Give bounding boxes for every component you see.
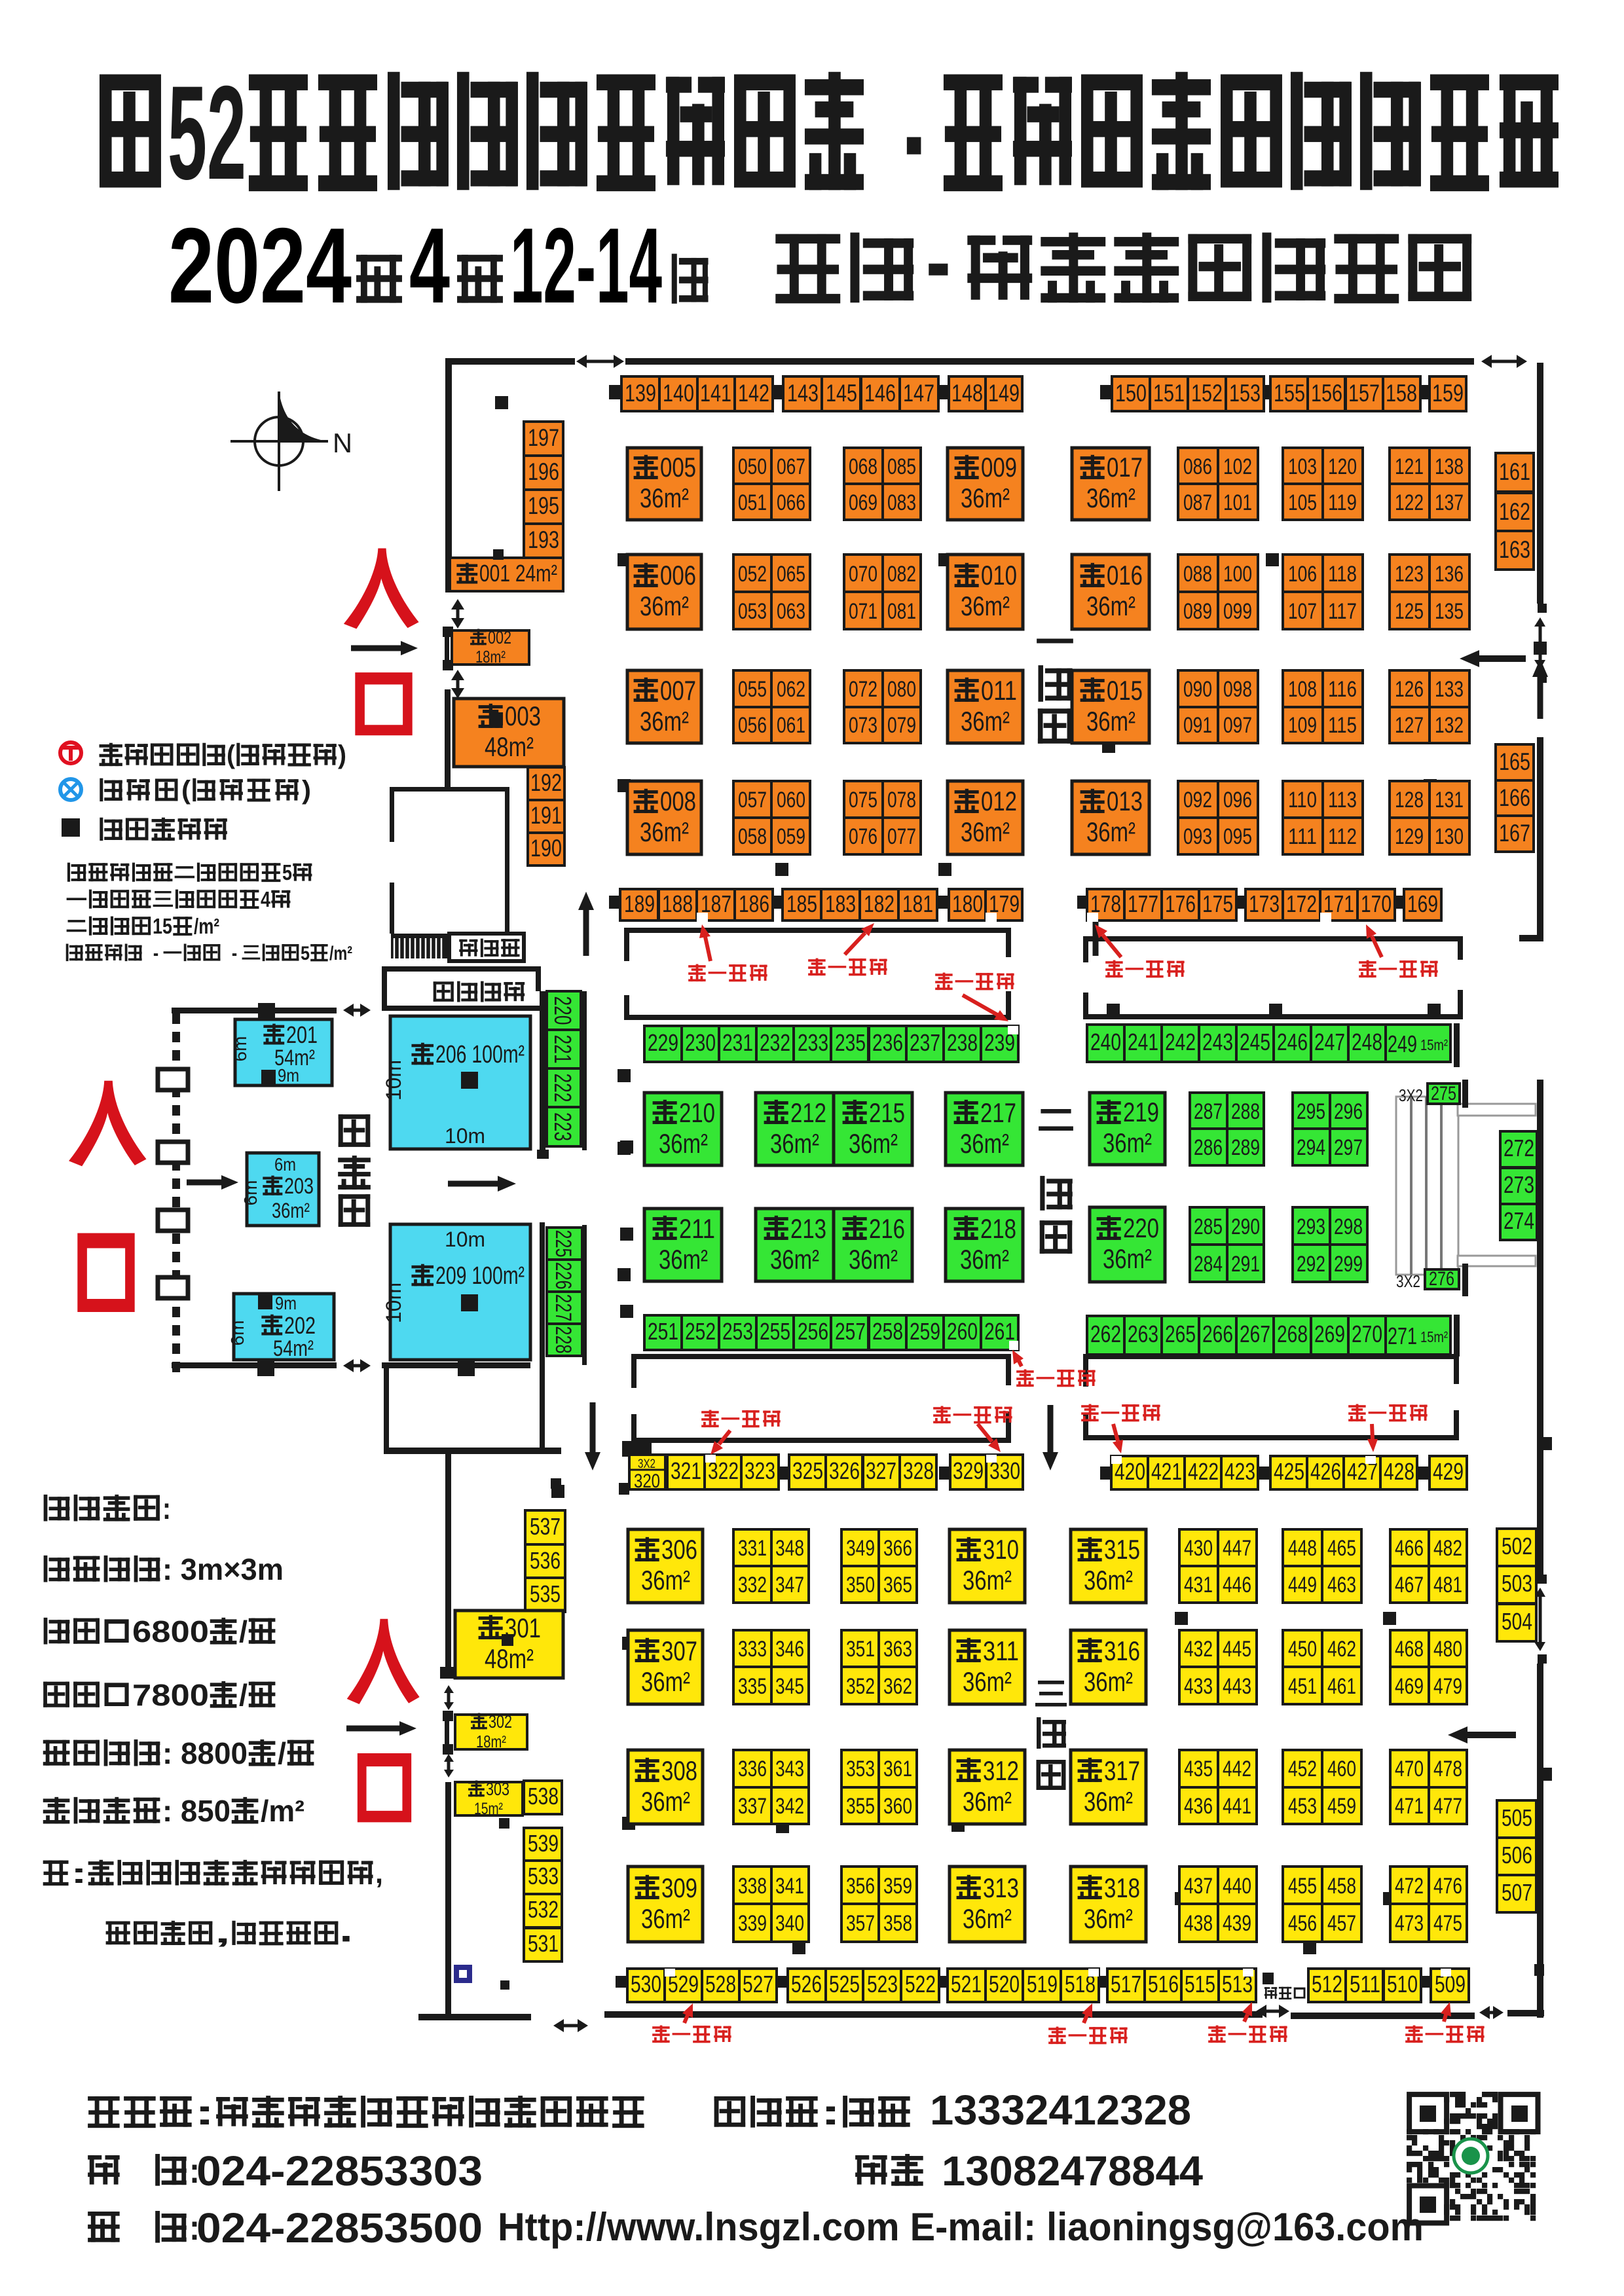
- svg-text:311: 311: [983, 1635, 1019, 1666]
- svg-text:219: 219: [1123, 1097, 1159, 1127]
- svg-text:309: 309: [661, 1872, 697, 1903]
- svg-text:010: 010: [981, 560, 1017, 591]
- svg-text:458: 458: [1327, 1874, 1356, 1899]
- svg-text:220: 220: [549, 996, 576, 1025]
- svg-text:166: 166: [1499, 784, 1530, 811]
- svg-text:267: 267: [1240, 1321, 1270, 1347]
- svg-text:005: 005: [660, 452, 696, 483]
- svg-text:441: 441: [1223, 1794, 1251, 1819]
- svg-text:285: 285: [1194, 1214, 1223, 1239]
- svg-text:182: 182: [864, 890, 895, 917]
- svg-text:358: 358: [883, 1911, 912, 1936]
- svg-text:276: 276: [1429, 1268, 1454, 1290]
- svg-text:291: 291: [1231, 1252, 1260, 1277]
- svg-text:527: 527: [743, 1971, 773, 1997]
- svg-text:131: 131: [1435, 788, 1464, 812]
- svg-text:517: 517: [1111, 1971, 1141, 1997]
- svg-text:081: 081: [887, 599, 916, 624]
- svg-text:521: 521: [951, 1971, 982, 1997]
- svg-text:246: 246: [1277, 1029, 1308, 1055]
- svg-text:051: 051: [738, 490, 767, 515]
- svg-text:516: 516: [1148, 1971, 1179, 1997]
- svg-text:533: 533: [528, 1863, 559, 1889]
- svg-text:173: 173: [1249, 890, 1280, 917]
- svg-text:350: 350: [846, 1573, 875, 1597]
- svg-text:308: 308: [661, 1755, 697, 1786]
- svg-text:127: 127: [1395, 713, 1424, 738]
- svg-text:255: 255: [760, 1318, 790, 1345]
- svg-text:505: 505: [1502, 1804, 1532, 1831]
- svg-text:083: 083: [887, 490, 916, 515]
- svg-text:159: 159: [1432, 380, 1464, 407]
- svg-text:136: 136: [1435, 562, 1464, 587]
- svg-text:101: 101: [1223, 490, 1252, 515]
- svg-text:: 8800: : 8800: [162, 1736, 248, 1770]
- svg-text:289: 289: [1231, 1135, 1260, 1160]
- svg-text:442: 442: [1223, 1757, 1251, 1781]
- svg-text:522: 522: [905, 1971, 936, 1997]
- svg-text:092: 092: [1183, 788, 1212, 812]
- svg-text:539: 539: [528, 1830, 559, 1857]
- svg-text:247: 247: [1314, 1029, 1345, 1055]
- svg-text:225: 225: [551, 1230, 576, 1258]
- svg-text:102: 102: [1223, 454, 1252, 479]
- svg-text:259: 259: [910, 1318, 940, 1345]
- svg-text:153: 153: [1229, 380, 1261, 407]
- svg-text:013: 013: [1107, 786, 1143, 816]
- svg-text:130: 130: [1435, 824, 1464, 849]
- svg-text:095: 095: [1223, 824, 1252, 849]
- svg-text:313: 313: [983, 1872, 1019, 1903]
- svg-text:228: 228: [551, 1326, 576, 1354]
- svg-text:36m²: 36m²: [640, 591, 689, 621]
- svg-text:113: 113: [1328, 788, 1357, 812]
- svg-text:012: 012: [981, 786, 1017, 816]
- svg-text:141: 141: [700, 380, 731, 407]
- svg-text:348: 348: [775, 1536, 804, 1561]
- svg-text:115: 115: [1328, 713, 1357, 738]
- svg-text:461: 461: [1327, 1674, 1356, 1699]
- svg-text:10m: 10m: [382, 1283, 405, 1323]
- svg-text:302: 302: [489, 1711, 512, 1732]
- svg-text:132: 132: [1435, 713, 1464, 738]
- svg-text:450: 450: [1288, 1637, 1317, 1662]
- svg-text:451: 451: [1288, 1674, 1317, 1699]
- svg-text:362: 362: [883, 1674, 912, 1699]
- svg-text:151: 151: [1153, 380, 1185, 407]
- svg-text:36m²: 36m²: [849, 1244, 898, 1275]
- svg-text:080: 080: [887, 677, 916, 702]
- svg-text:072: 072: [849, 677, 877, 702]
- svg-text:2024: 2024: [168, 206, 352, 325]
- svg-text:053: 053: [738, 599, 767, 624]
- svg-text:078: 078: [887, 788, 916, 812]
- svg-text:36m²: 36m²: [963, 1666, 1012, 1697]
- svg-text::: :: [194, 2092, 215, 2132]
- svg-text:233: 233: [798, 1029, 828, 1056]
- svg-text:077: 077: [887, 824, 916, 849]
- svg-text:36m²: 36m²: [960, 1244, 1009, 1275]
- svg-text:125: 125: [1395, 599, 1424, 624]
- svg-text:460: 460: [1327, 1757, 1356, 1781]
- svg-text:057: 057: [738, 788, 767, 812]
- svg-text:284: 284: [1194, 1252, 1223, 1277]
- svg-text:070: 070: [849, 562, 877, 587]
- svg-text:024-22853500: 024-22853500: [196, 2204, 483, 2251]
- svg-text:480: 480: [1433, 1637, 1462, 1662]
- svg-text:528: 528: [705, 1971, 736, 1997]
- svg-text:001 24m²: 001 24m²: [479, 560, 557, 587]
- svg-text:445: 445: [1223, 1637, 1251, 1662]
- svg-text:215: 215: [869, 1097, 905, 1128]
- svg-text:216: 216: [869, 1213, 905, 1244]
- svg-text:143: 143: [787, 380, 819, 407]
- svg-text:312: 312: [983, 1755, 1019, 1786]
- svg-text:203: 203: [284, 1174, 314, 1199]
- svg-text:286: 286: [1194, 1135, 1223, 1160]
- svg-text::: :: [162, 1491, 171, 1525]
- svg-text:36m²: 36m²: [1086, 591, 1135, 621]
- svg-text:287: 287: [1194, 1099, 1223, 1124]
- svg-text:068: 068: [849, 454, 877, 479]
- svg-text:091: 091: [1183, 713, 1212, 738]
- svg-text:36m²: 36m²: [849, 1128, 898, 1159]
- svg-text:36m²: 36m²: [961, 591, 1010, 621]
- svg-text:/: /: [278, 1736, 286, 1770]
- svg-text:36m²: 36m²: [1084, 1786, 1133, 1817]
- svg-text:162: 162: [1499, 498, 1530, 525]
- svg-text:,: ,: [375, 1857, 383, 1889]
- svg-text:36m²: 36m²: [641, 1565, 690, 1595]
- svg-text:069: 069: [849, 490, 877, 515]
- svg-text:183: 183: [825, 890, 856, 917]
- svg-text:525: 525: [829, 1971, 860, 1997]
- svg-text:357: 357: [846, 1911, 875, 1936]
- svg-text:327: 327: [866, 1457, 896, 1484]
- svg-text:299: 299: [1334, 1252, 1363, 1277]
- svg-text:36m²: 36m²: [1084, 1565, 1133, 1595]
- svg-text:109: 109: [1288, 713, 1317, 738]
- svg-text:270: 270: [1352, 1321, 1382, 1347]
- svg-text:243: 243: [1202, 1029, 1233, 1055]
- svg-text:251: 251: [648, 1318, 678, 1345]
- svg-text:197: 197: [528, 424, 559, 451]
- svg-text:36m²: 36m²: [961, 816, 1010, 847]
- svg-text:150: 150: [1115, 380, 1147, 407]
- svg-text:329: 329: [953, 1457, 984, 1484]
- svg-text:: 850: : 850: [162, 1794, 231, 1828]
- svg-text:341: 341: [775, 1874, 804, 1899]
- svg-text:290: 290: [1231, 1214, 1260, 1239]
- svg-text:193: 193: [528, 526, 559, 553]
- svg-text:36m²: 36m²: [770, 1244, 819, 1275]
- svg-text:210: 210: [679, 1097, 715, 1128]
- svg-text:238: 238: [947, 1029, 978, 1056]
- svg-text:223: 223: [549, 1112, 576, 1141]
- svg-text:6m: 6m: [274, 1154, 296, 1175]
- svg-text:107: 107: [1288, 599, 1317, 624]
- svg-text:137: 137: [1435, 490, 1464, 515]
- svg-text:52: 52: [168, 59, 246, 208]
- svg-text:158: 158: [1386, 380, 1417, 407]
- svg-text:318: 318: [1104, 1872, 1140, 1903]
- svg-text:430: 430: [1184, 1536, 1213, 1561]
- svg-text:161: 161: [1499, 458, 1530, 485]
- svg-text:/m²: /m²: [261, 1794, 304, 1828]
- svg-text:261: 261: [984, 1318, 1015, 1345]
- svg-text:202: 202: [284, 1312, 316, 1339]
- svg-text:209 100m²: 209 100m²: [435, 1262, 525, 1290]
- svg-text:245: 245: [1240, 1029, 1270, 1055]
- svg-text:481: 481: [1433, 1573, 1462, 1597]
- svg-text:/m²: /m²: [194, 914, 219, 938]
- svg-text:147: 147: [903, 380, 934, 407]
- svg-text:148: 148: [951, 380, 983, 407]
- svg-text:7800: 7800: [132, 1678, 209, 1712]
- svg-text:062: 062: [777, 677, 805, 702]
- svg-text:506: 506: [1502, 1842, 1532, 1868]
- svg-text:15m²: 15m²: [474, 1800, 503, 1818]
- svg-text:18m²: 18m²: [476, 1732, 506, 1751]
- svg-text:260: 260: [947, 1318, 978, 1345]
- svg-text:156: 156: [1311, 380, 1342, 407]
- svg-text:071: 071: [849, 599, 877, 624]
- svg-text:502: 502: [1502, 1533, 1532, 1559]
- svg-text:336: 336: [738, 1757, 767, 1781]
- svg-text:335: 335: [738, 1674, 767, 1699]
- svg-text:468: 468: [1395, 1637, 1424, 1662]
- svg-text:190: 190: [530, 835, 562, 862]
- svg-text:456: 456: [1288, 1911, 1317, 1936]
- svg-text:352: 352: [846, 1674, 875, 1699]
- svg-text:36m²: 36m²: [1084, 1903, 1133, 1934]
- svg-text:351: 351: [846, 1637, 875, 1662]
- svg-text:103: 103: [1288, 454, 1317, 479]
- svg-text:128: 128: [1395, 788, 1424, 812]
- svg-text:(: (: [181, 776, 191, 805]
- svg-text:347: 347: [775, 1573, 804, 1597]
- svg-text:112: 112: [1328, 824, 1357, 849]
- svg-text:006: 006: [660, 560, 696, 591]
- svg-text:052: 052: [738, 562, 767, 587]
- svg-text:093: 093: [1183, 824, 1212, 849]
- svg-text:061: 061: [777, 713, 805, 738]
- svg-text:535: 535: [530, 1580, 561, 1607]
- svg-text:015: 015: [1107, 675, 1143, 706]
- svg-text:242: 242: [1165, 1029, 1196, 1055]
- svg-text:338: 338: [738, 1874, 767, 1899]
- svg-text:017: 017: [1107, 452, 1143, 483]
- svg-text:275: 275: [1431, 1083, 1456, 1104]
- svg-text:478: 478: [1433, 1757, 1462, 1781]
- svg-text:167: 167: [1499, 820, 1530, 847]
- svg-text:117: 117: [1328, 599, 1357, 624]
- svg-text:116: 116: [1328, 677, 1357, 702]
- svg-text:098: 098: [1223, 677, 1252, 702]
- svg-text:235: 235: [835, 1029, 866, 1056]
- svg-text:206 100m²: 206 100m²: [435, 1041, 525, 1068]
- svg-text:212: 212: [790, 1097, 826, 1128]
- svg-text:024-22853303: 024-22853303: [196, 2147, 483, 2195]
- svg-text:237: 237: [910, 1029, 940, 1056]
- svg-text:36m²: 36m²: [770, 1128, 819, 1159]
- svg-text:36m²: 36m²: [640, 816, 689, 847]
- svg-text:298: 298: [1334, 1214, 1363, 1239]
- svg-text:36m²: 36m²: [1103, 1243, 1152, 1274]
- svg-text:436: 436: [1184, 1794, 1213, 1819]
- svg-text:211: 211: [679, 1213, 715, 1244]
- svg-text:145: 145: [826, 380, 857, 407]
- svg-text:472: 472: [1395, 1874, 1424, 1899]
- svg-text:252: 252: [685, 1318, 716, 1345]
- svg-text:256: 256: [798, 1318, 828, 1345]
- svg-text:266: 266: [1202, 1321, 1233, 1347]
- svg-text:163: 163: [1499, 536, 1530, 563]
- svg-text:523: 523: [867, 1971, 898, 1997]
- svg-text:325: 325: [792, 1457, 823, 1484]
- svg-text:3X2: 3X2: [1396, 1271, 1420, 1291]
- svg-text:531: 531: [528, 1930, 559, 1957]
- svg-text:186: 186: [739, 890, 769, 917]
- svg-text:455: 455: [1288, 1874, 1317, 1899]
- svg-text:339: 339: [738, 1911, 767, 1936]
- svg-text:258: 258: [872, 1318, 903, 1345]
- svg-text:058: 058: [738, 824, 767, 849]
- svg-text:48m²: 48m²: [485, 1643, 534, 1674]
- svg-text:538: 538: [528, 1783, 559, 1810]
- svg-text:328: 328: [903, 1457, 934, 1484]
- svg-text:085: 085: [887, 454, 916, 479]
- svg-text:475: 475: [1433, 1911, 1462, 1936]
- svg-text:36m²: 36m²: [1086, 483, 1135, 513]
- svg-text:157: 157: [1348, 380, 1380, 407]
- svg-text:227: 227: [551, 1294, 576, 1322]
- svg-text:307: 307: [661, 1635, 697, 1666]
- svg-text:105: 105: [1288, 490, 1317, 515]
- svg-text:181: 181: [902, 890, 933, 917]
- svg-text::: :: [71, 1857, 87, 1889]
- svg-text:36m²: 36m²: [960, 1128, 1009, 1159]
- svg-text:422: 422: [1188, 1458, 1219, 1485]
- svg-text:177: 177: [1128, 890, 1158, 917]
- svg-text:220: 220: [1123, 1212, 1159, 1243]
- svg-text:073: 073: [849, 713, 877, 738]
- svg-text:439: 439: [1223, 1911, 1251, 1936]
- svg-text:515: 515: [1185, 1971, 1215, 1997]
- svg-text:13082478844: 13082478844: [942, 2147, 1203, 2195]
- svg-text:10m: 10m: [445, 1228, 485, 1251]
- svg-text:297: 297: [1334, 1135, 1363, 1160]
- svg-text:360: 360: [883, 1794, 912, 1819]
- svg-text:146: 146: [864, 380, 896, 407]
- svg-text:320: 320: [634, 1470, 660, 1492]
- svg-text:440: 440: [1223, 1874, 1251, 1899]
- svg-text:503: 503: [1502, 1570, 1532, 1597]
- svg-text:3X2: 3X2: [1399, 1085, 1423, 1105]
- svg-text:248: 248: [1352, 1029, 1382, 1055]
- svg-text:36m²: 36m²: [963, 1786, 1012, 1817]
- svg-text:355: 355: [846, 1794, 875, 1819]
- svg-text:4: 4: [261, 887, 271, 911]
- svg-text:292: 292: [1297, 1252, 1325, 1277]
- svg-text:142: 142: [738, 380, 769, 407]
- svg-text:428: 428: [1384, 1458, 1414, 1485]
- svg-text:452: 452: [1288, 1757, 1317, 1781]
- svg-text:9m: 9m: [275, 1293, 297, 1313]
- svg-text:463: 463: [1327, 1573, 1356, 1597]
- svg-text:185: 185: [786, 890, 817, 917]
- svg-text:056: 056: [738, 713, 767, 738]
- svg-text:086: 086: [1183, 454, 1212, 479]
- svg-text:149: 149: [988, 380, 1020, 407]
- svg-text:089: 089: [1183, 599, 1212, 624]
- svg-text:504: 504: [1502, 1608, 1532, 1635]
- svg-text:10m: 10m: [445, 1124, 485, 1148]
- svg-text:432: 432: [1184, 1637, 1213, 1662]
- svg-text:315: 315: [1104, 1534, 1140, 1565]
- svg-text:236: 236: [872, 1029, 903, 1056]
- svg-text:097: 097: [1223, 713, 1252, 738]
- svg-text:469: 469: [1395, 1674, 1424, 1699]
- svg-text:296: 296: [1334, 1099, 1363, 1124]
- svg-text:100: 100: [1223, 562, 1252, 587]
- svg-text:10m: 10m: [382, 1060, 405, 1101]
- svg-text:191: 191: [530, 802, 562, 829]
- svg-text:/m²: /m²: [329, 943, 352, 964]
- svg-text:192: 192: [530, 769, 562, 796]
- svg-text:063: 063: [777, 599, 805, 624]
- svg-text:465: 465: [1327, 1536, 1356, 1561]
- svg-text:011: 011: [981, 675, 1017, 706]
- svg-text:067: 067: [777, 454, 805, 479]
- svg-text:429: 429: [1433, 1458, 1464, 1485]
- svg-text:36m²: 36m²: [641, 1903, 690, 1934]
- svg-text:126: 126: [1395, 677, 1424, 702]
- svg-text:363: 363: [883, 1637, 912, 1662]
- svg-text:532: 532: [528, 1896, 559, 1923]
- svg-text:15m²: 15m²: [1420, 1036, 1448, 1053]
- svg-text:230: 230: [685, 1029, 716, 1056]
- svg-text:·: ·: [919, 224, 965, 313]
- svg-text:172: 172: [1286, 890, 1317, 917]
- svg-text:139: 139: [625, 380, 656, 407]
- svg-text:): ): [338, 740, 346, 769]
- svg-text:36m²: 36m²: [961, 483, 1010, 513]
- svg-text:536: 536: [530, 1547, 561, 1574]
- svg-text:331: 331: [738, 1536, 767, 1561]
- svg-text:165: 165: [1499, 748, 1530, 775]
- svg-text:537: 537: [530, 1513, 561, 1540]
- svg-text:306: 306: [661, 1534, 697, 1565]
- svg-text:462: 462: [1327, 1637, 1356, 1662]
- svg-text:229: 229: [648, 1029, 678, 1056]
- svg-text:332: 332: [738, 1573, 767, 1597]
- svg-text:262: 262: [1090, 1321, 1121, 1347]
- svg-text:421: 421: [1151, 1458, 1182, 1485]
- svg-text:009: 009: [981, 452, 1017, 483]
- svg-text:448: 448: [1288, 1536, 1317, 1561]
- svg-text:082: 082: [887, 562, 916, 587]
- svg-text:15: 15: [153, 914, 172, 938]
- svg-text:111: 111: [1288, 824, 1317, 849]
- svg-text:090: 090: [1183, 677, 1212, 702]
- svg-text:459: 459: [1327, 1794, 1356, 1819]
- svg-text:065: 065: [777, 562, 805, 587]
- svg-text:453: 453: [1288, 1794, 1317, 1819]
- svg-text:265: 265: [1165, 1321, 1196, 1347]
- svg-text:288: 288: [1231, 1099, 1260, 1124]
- svg-text:6800: 6800: [132, 1614, 209, 1649]
